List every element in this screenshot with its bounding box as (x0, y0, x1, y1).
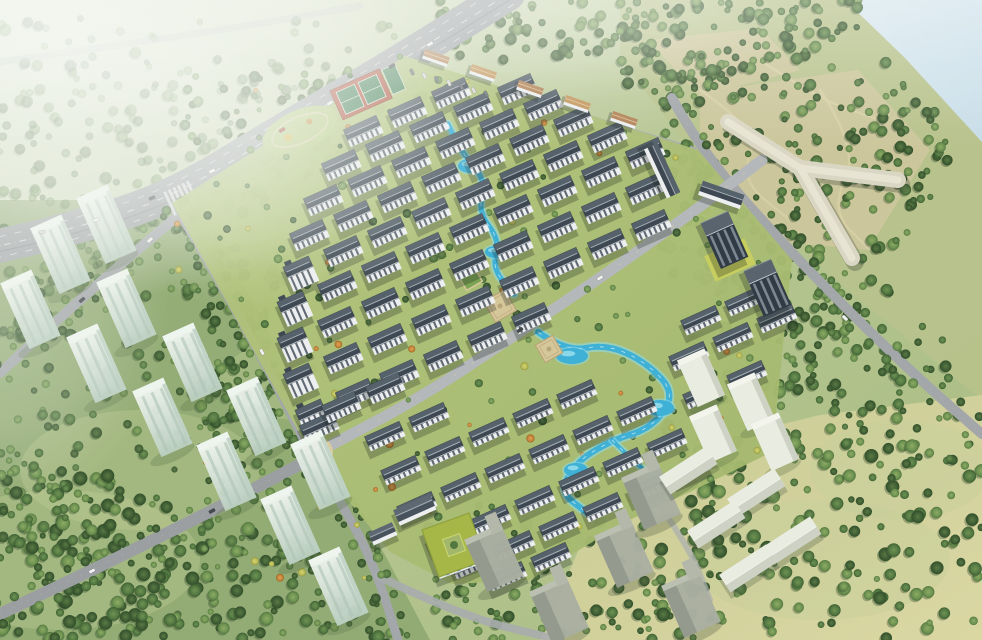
rendering-canvas (0, 0, 982, 640)
aerial-masterplan-rendering (0, 0, 982, 640)
